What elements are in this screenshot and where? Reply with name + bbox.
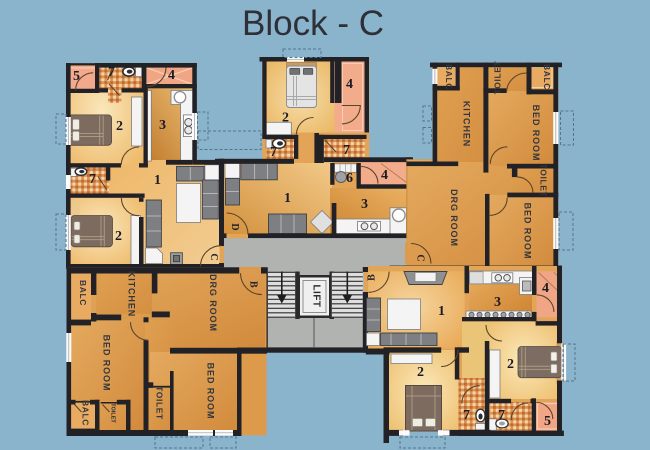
svg-text:LIFT: LIFT [311,284,322,307]
svg-text:C: C [208,253,219,260]
svg-text:2: 2 [282,111,289,126]
svg-text:2: 2 [507,357,514,372]
svg-text:BED ROOM: BED ROOM [206,363,216,420]
svg-text:KITCHEN: KITCHEN [461,101,471,147]
svg-text:B: B [247,281,258,288]
svg-text:3: 3 [494,295,501,310]
svg-text:BED ROOM: BED ROOM [102,335,112,392]
svg-text:TOILET: TOILET [493,60,503,94]
svg-text:7: 7 [463,408,470,423]
svg-text:7: 7 [343,143,350,158]
svg-text:DRG ROOM: DRG ROOM [449,189,459,247]
svg-text:1: 1 [284,191,291,206]
svg-text:D: D [229,223,240,230]
svg-text:BED ROOM: BED ROOM [531,105,541,162]
svg-text:2: 2 [116,119,123,134]
svg-text:BALC: BALC [78,280,88,306]
svg-text:4: 4 [381,168,388,183]
svg-text:BALC: BALC [81,400,91,426]
svg-text:4: 4 [346,77,353,92]
svg-text:TOILET: TOILET [155,386,165,420]
svg-text:DRG ROOM: DRG ROOM [208,274,218,332]
svg-text:7: 7 [89,172,96,187]
svg-text:Block - C: Block - C [242,4,384,43]
svg-text:TOILET: TOILET [539,164,549,198]
svg-text:TOILET: TOILET [110,403,116,423]
svg-text:2: 2 [115,229,122,244]
svg-text:KITCHEN: KITCHEN [127,271,137,317]
svg-text:7: 7 [498,408,505,423]
svg-text:2: 2 [417,365,424,380]
svg-text:BALC: BALC [542,64,552,90]
svg-text:B: B [367,274,378,281]
svg-text:7: 7 [270,145,277,160]
svg-text:3: 3 [159,118,166,133]
svg-text:5: 5 [73,69,80,84]
svg-text:3: 3 [361,197,368,212]
svg-text:BALC: BALC [444,64,454,90]
svg-text:BED ROOM: BED ROOM [522,203,532,260]
svg-text:5: 5 [544,414,551,429]
svg-text:6: 6 [346,171,353,186]
svg-text:4: 4 [542,281,549,296]
svg-text:1: 1 [154,173,161,188]
svg-text:C: C [415,254,426,261]
svg-text:7: 7 [108,65,115,80]
svg-text:4: 4 [168,68,175,83]
svg-text:1: 1 [438,304,445,319]
